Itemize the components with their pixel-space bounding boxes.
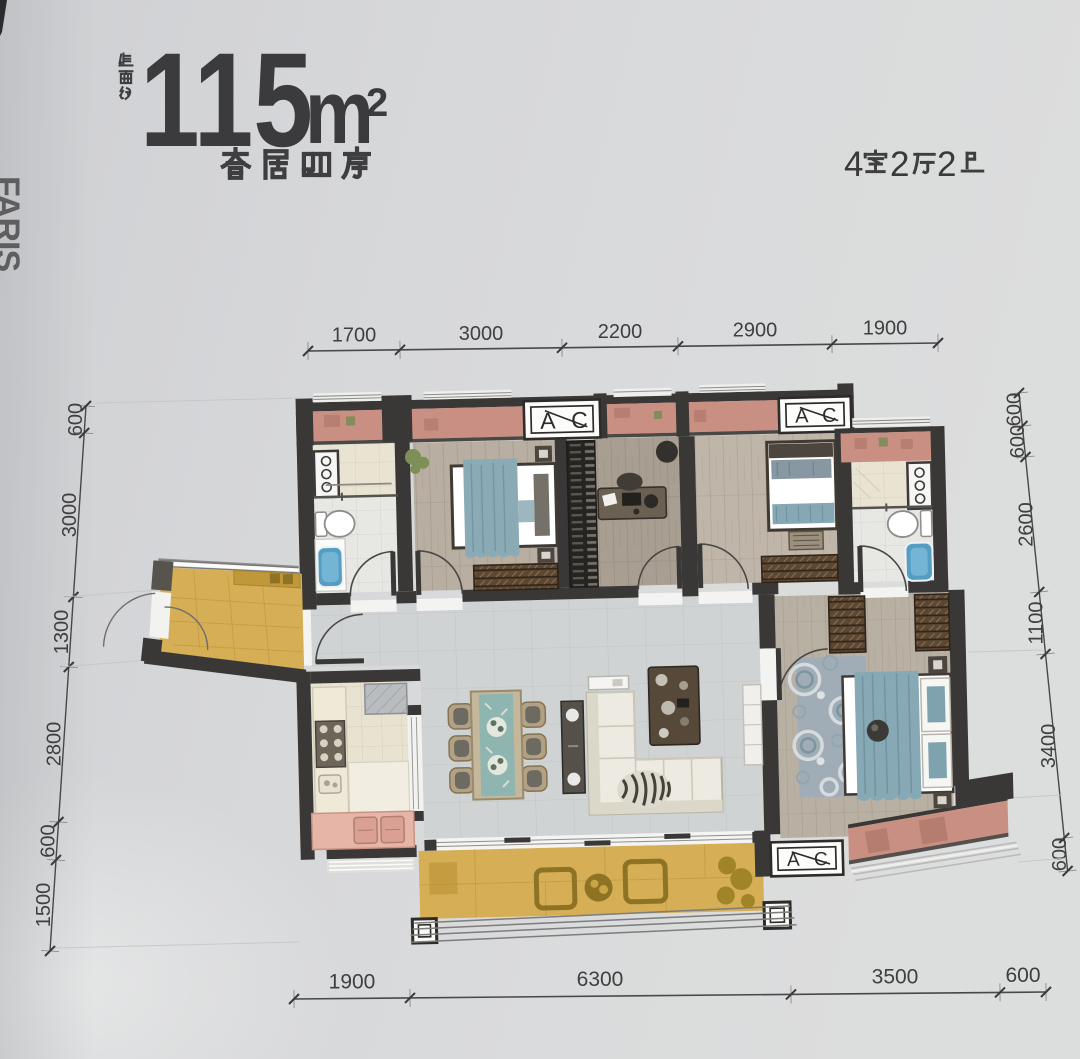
- svg-text:1100: 1100: [1025, 601, 1047, 644]
- svg-text:1700: 1700: [332, 324, 377, 346]
- svg-text:3400: 3400: [1038, 724, 1060, 769]
- svg-text:2800: 2800: [44, 722, 66, 767]
- svg-text:2900: 2900: [733, 319, 778, 341]
- svg-text:600: 600: [65, 403, 87, 436]
- svg-text:m: m: [305, 62, 374, 163]
- svg-text:600: 600: [1005, 964, 1040, 987]
- svg-text:600: 600: [1004, 393, 1026, 426]
- svg-text:3000: 3000: [59, 493, 81, 538]
- svg-text:600: 600: [1007, 425, 1029, 458]
- svg-text:2200: 2200: [598, 321, 643, 343]
- svg-text:1300: 1300: [51, 610, 73, 655]
- svg-text:FARIS: FARIS: [0, 176, 26, 271]
- svg-text:2: 2: [937, 145, 956, 184]
- svg-text:6300: 6300: [577, 968, 624, 991]
- svg-text:2600: 2600: [1015, 502, 1037, 547]
- svg-text:2: 2: [366, 81, 388, 125]
- svg-text:3500: 3500: [872, 965, 919, 988]
- svg-text:3000: 3000: [459, 323, 504, 345]
- svg-text:4: 4: [844, 145, 863, 184]
- svg-text:1900: 1900: [863, 318, 908, 340]
- svg-text:1500: 1500: [33, 883, 55, 928]
- svg-text:1900: 1900: [329, 971, 376, 994]
- svg-text:C: C: [571, 407, 588, 433]
- svg-text:2: 2: [890, 145, 909, 184]
- svg-text:600: 600: [1049, 838, 1071, 871]
- svg-text:600: 600: [37, 824, 59, 857]
